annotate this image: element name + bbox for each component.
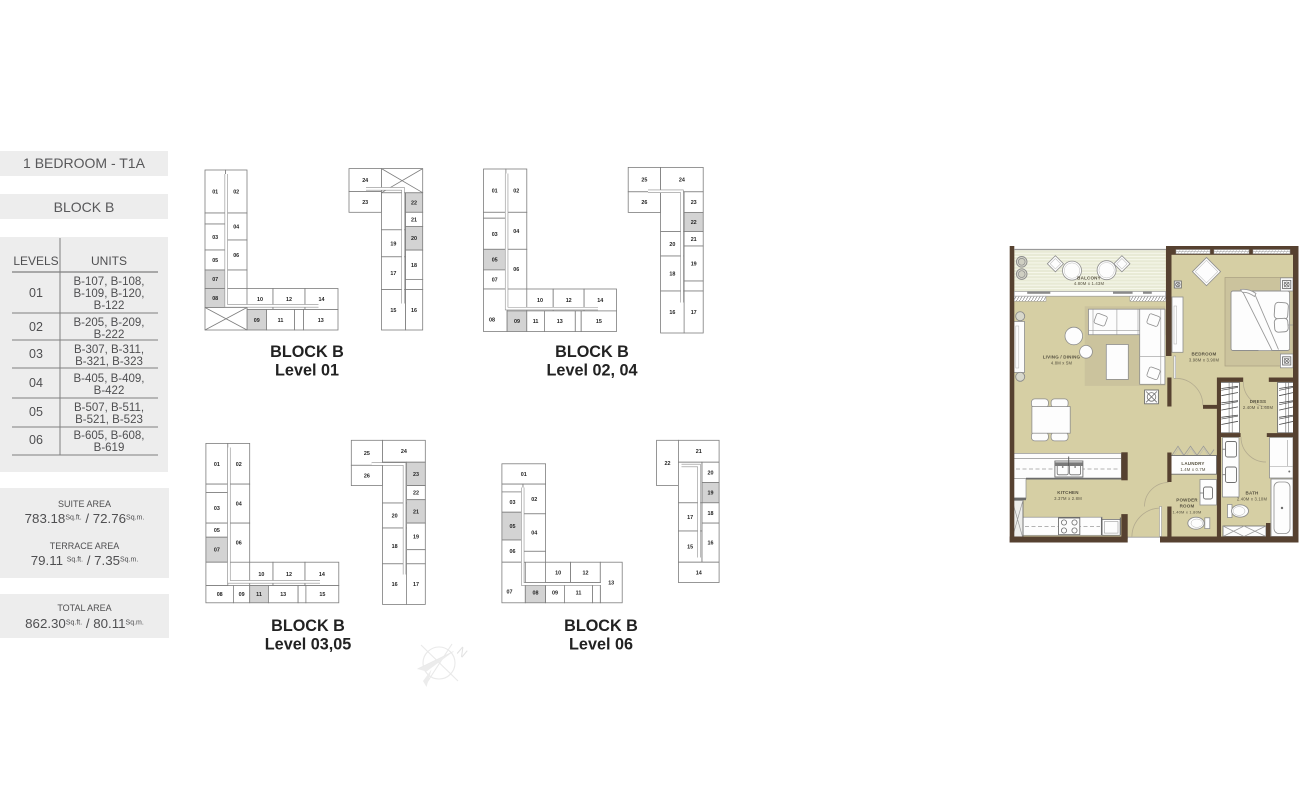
svg-text:1.4M x 0.7M: 1.4M x 0.7M	[1180, 467, 1206, 472]
svg-text:N: N	[454, 644, 470, 661]
svg-text:19: 19	[390, 241, 396, 247]
svg-text:23: 23	[691, 200, 697, 206]
svg-text:06: 06	[233, 253, 239, 259]
svg-text:BLOCK B: BLOCK B	[271, 617, 345, 635]
svg-text:4.8M x 5M: 4.8M x 5M	[1051, 361, 1073, 366]
svg-text:05: 05	[214, 528, 220, 534]
svg-text:08: 08	[533, 591, 539, 597]
svg-text:25: 25	[641, 178, 647, 184]
svg-text:20: 20	[669, 242, 675, 248]
svg-text:20: 20	[392, 514, 398, 520]
svg-text:06: 06	[236, 541, 242, 547]
svg-text:13: 13	[608, 581, 614, 587]
svg-text:19: 19	[413, 534, 419, 540]
svg-text:21: 21	[696, 449, 702, 455]
svg-text:11: 11	[576, 591, 582, 597]
svg-text:12: 12	[286, 572, 292, 578]
svg-text:03: 03	[212, 235, 218, 241]
svg-text:2.40M x 1.60M: 2.40M x 1.60M	[1243, 405, 1274, 410]
svg-text:12: 12	[286, 297, 292, 303]
svg-text:07: 07	[212, 277, 218, 283]
svg-text:09: 09	[514, 319, 520, 325]
svg-text:LAUNDRY: LAUNDRY	[1181, 461, 1204, 466]
svg-text:12: 12	[566, 298, 572, 304]
svg-text:20: 20	[708, 470, 714, 476]
svg-text:03: 03	[492, 232, 498, 238]
svg-text:24: 24	[679, 178, 685, 184]
svg-text:KITCHEN: KITCHEN	[1057, 490, 1078, 495]
svg-text:21: 21	[411, 217, 417, 223]
svg-text:16: 16	[411, 308, 417, 314]
svg-text:05: 05	[212, 258, 218, 264]
svg-text:16: 16	[708, 541, 714, 547]
svg-text:17: 17	[390, 271, 396, 277]
svg-text:16: 16	[669, 310, 675, 316]
svg-text:22: 22	[411, 201, 417, 207]
svg-text:15: 15	[319, 592, 325, 598]
svg-text:4.80M x 1.43M: 4.80M x 1.43M	[1074, 281, 1105, 286]
svg-text:18: 18	[708, 511, 714, 517]
svg-text:02: 02	[236, 462, 242, 468]
svg-text:14: 14	[319, 297, 325, 303]
svg-text:01: 01	[521, 472, 527, 478]
svg-text:18: 18	[392, 544, 398, 550]
svg-text:22: 22	[691, 220, 697, 226]
svg-text:04: 04	[513, 229, 519, 235]
svg-text:09: 09	[254, 318, 260, 324]
svg-text:08: 08	[212, 296, 218, 302]
svg-text:BLOCK B: BLOCK B	[555, 343, 629, 361]
svg-text:05: 05	[492, 258, 498, 264]
svg-text:14: 14	[696, 570, 702, 576]
svg-text:19: 19	[691, 262, 697, 268]
svg-text:11: 11	[533, 319, 539, 325]
svg-text:03: 03	[214, 506, 220, 512]
svg-text:03: 03	[510, 500, 516, 506]
svg-text:3.98M x 3.90M: 3.98M x 3.90M	[1189, 358, 1220, 363]
svg-text:02: 02	[531, 497, 537, 503]
svg-text:10: 10	[258, 572, 264, 578]
svg-text:BLOCK B: BLOCK B	[270, 343, 344, 361]
svg-text:05: 05	[510, 524, 516, 530]
svg-text:17: 17	[413, 582, 419, 588]
svg-text:16: 16	[392, 582, 398, 588]
svg-text:02: 02	[513, 189, 519, 195]
svg-text:26: 26	[364, 474, 370, 480]
svg-text:2.40M x 3.10M: 2.40M x 3.10M	[1237, 497, 1268, 502]
svg-text:BALCONY: BALCONY	[1077, 276, 1101, 281]
svg-text:04: 04	[531, 531, 537, 537]
svg-text:23: 23	[362, 200, 368, 206]
svg-text:Level 03,05: Level 03,05	[265, 636, 351, 654]
svg-text:14: 14	[319, 572, 325, 578]
svg-text:01: 01	[212, 190, 218, 196]
svg-text:26: 26	[641, 200, 647, 206]
svg-text:Level 06: Level 06	[569, 636, 633, 654]
svg-text:10: 10	[555, 570, 561, 576]
svg-text:17: 17	[687, 515, 693, 521]
svg-text:04: 04	[236, 502, 242, 508]
svg-text:01: 01	[492, 189, 498, 195]
svg-text:24: 24	[401, 449, 407, 455]
svg-text:19: 19	[708, 491, 714, 497]
svg-text:20: 20	[411, 236, 417, 242]
svg-text:3.37M x 2.8M: 3.37M x 2.8M	[1054, 496, 1082, 501]
svg-text:13: 13	[557, 319, 563, 325]
svg-text:07: 07	[507, 590, 513, 596]
svg-text:LIVING / DINING: LIVING / DINING	[1043, 355, 1081, 360]
svg-text:11: 11	[278, 318, 284, 324]
svg-text:10: 10	[537, 298, 543, 304]
svg-text:07: 07	[492, 277, 498, 283]
svg-text:22: 22	[665, 461, 671, 467]
svg-text:BLOCK B: BLOCK B	[564, 617, 638, 635]
svg-text:18: 18	[669, 272, 675, 278]
svg-text:23: 23	[413, 472, 419, 478]
svg-text:04: 04	[233, 225, 239, 231]
svg-text:21: 21	[691, 237, 697, 243]
svg-text:ROOM: ROOM	[1180, 504, 1195, 509]
svg-text:10: 10	[257, 297, 263, 303]
svg-text:06: 06	[513, 267, 519, 273]
svg-text:22: 22	[413, 491, 419, 497]
svg-text:15: 15	[687, 545, 693, 551]
svg-text:14: 14	[597, 298, 603, 304]
svg-text:08: 08	[217, 592, 223, 598]
svg-text:13: 13	[280, 592, 286, 598]
svg-text:15: 15	[390, 308, 396, 314]
svg-text:07: 07	[214, 548, 220, 554]
svg-text:DRESS: DRESS	[1250, 399, 1267, 404]
svg-text:11: 11	[256, 592, 262, 598]
svg-text:17: 17	[691, 310, 697, 316]
svg-text:12: 12	[583, 570, 589, 576]
svg-text:09: 09	[239, 592, 245, 598]
svg-text:BATH: BATH	[1246, 491, 1259, 496]
svg-text:Level 02, 04: Level 02, 04	[547, 362, 638, 380]
svg-text:1.40M x 1.80M: 1.40M x 1.80M	[1172, 510, 1201, 515]
svg-text:09: 09	[552, 591, 558, 597]
svg-text:Level 01: Level 01	[275, 362, 339, 380]
svg-text:POWDER: POWDER	[1176, 498, 1198, 503]
svg-text:24: 24	[362, 178, 368, 184]
svg-text:06: 06	[510, 549, 516, 555]
svg-text:01: 01	[214, 462, 220, 468]
svg-text:13: 13	[318, 318, 324, 324]
svg-text:25: 25	[364, 451, 370, 457]
svg-text:15: 15	[596, 319, 602, 325]
svg-text:08: 08	[489, 318, 495, 324]
svg-text:02: 02	[233, 190, 239, 196]
svg-text:21: 21	[413, 509, 419, 515]
svg-text:18: 18	[411, 263, 417, 269]
svg-text:BEDROOM: BEDROOM	[1192, 352, 1217, 357]
